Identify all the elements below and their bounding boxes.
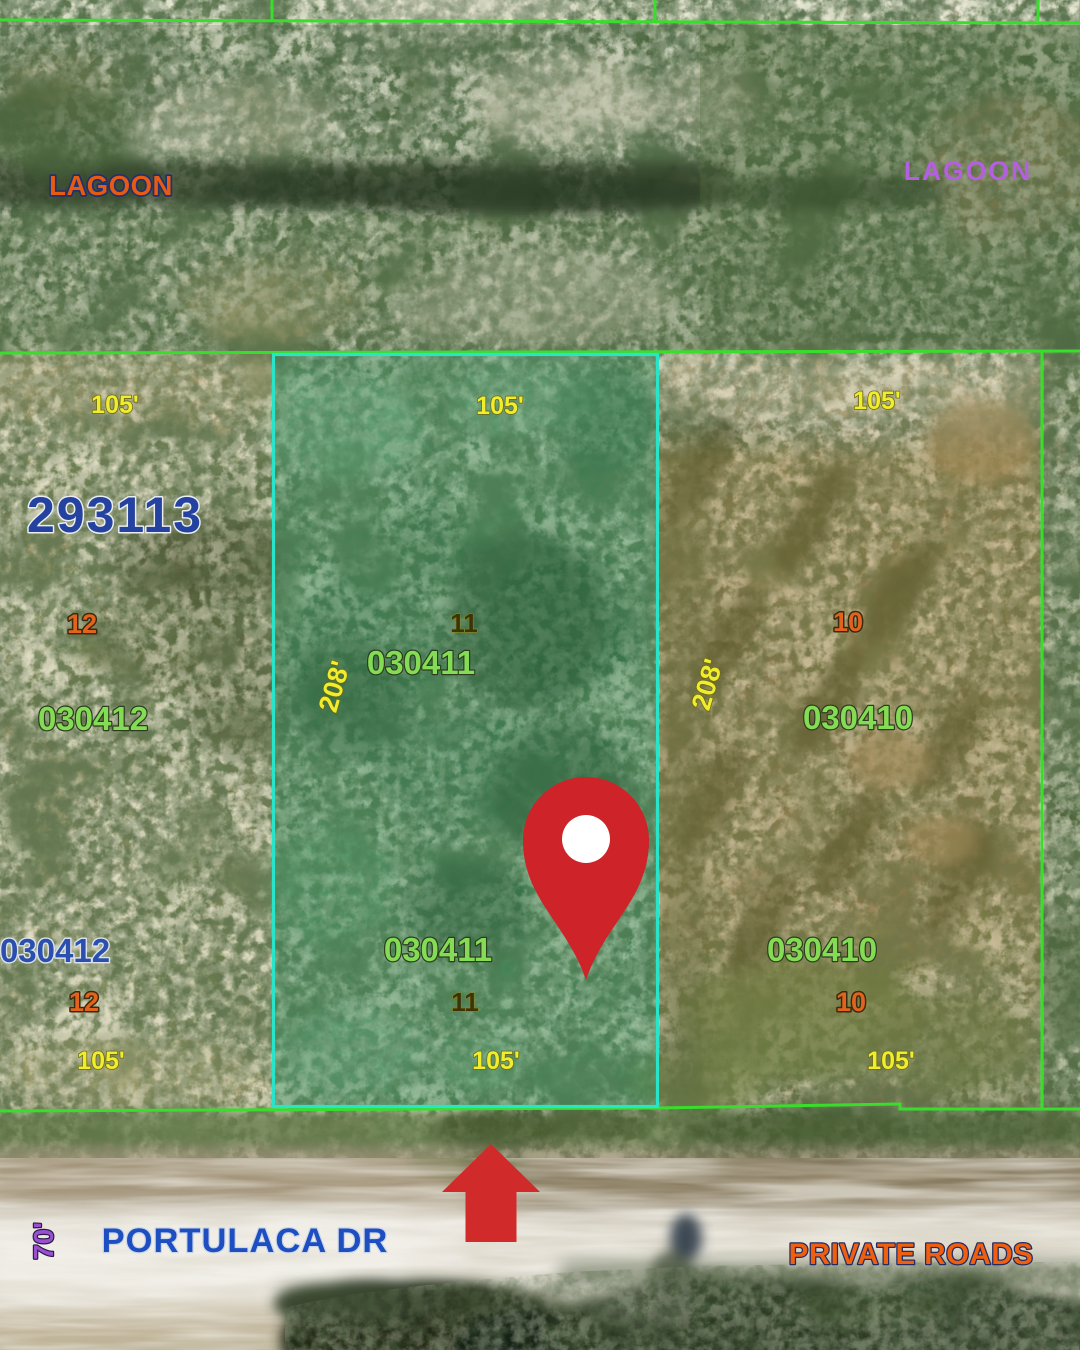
svg-text:030411: 030411 xyxy=(384,931,492,968)
svg-text:105': 105' xyxy=(472,1047,520,1075)
svg-text:105': 105' xyxy=(853,387,901,415)
svg-text:030412: 030412 xyxy=(38,700,148,737)
svg-text:LAGOON: LAGOON xyxy=(49,170,173,201)
svg-text:12: 12 xyxy=(67,609,97,639)
svg-text:105': 105' xyxy=(77,1047,125,1075)
svg-text:105': 105' xyxy=(91,391,139,419)
svg-text:PORTULACA DR: PORTULACA DR xyxy=(102,1222,389,1260)
svg-text:11: 11 xyxy=(451,987,479,1017)
svg-text:12: 12 xyxy=(69,987,99,1017)
svg-text:10: 10 xyxy=(833,607,863,637)
svg-text:LAGOON: LAGOON xyxy=(904,156,1032,186)
svg-text:10: 10 xyxy=(836,987,866,1017)
svg-text:030410: 030410 xyxy=(803,699,913,736)
svg-text:11: 11 xyxy=(450,608,478,638)
svg-text:105': 105' xyxy=(476,392,524,420)
svg-text:293113: 293113 xyxy=(27,487,203,543)
svg-text:030412: 030412 xyxy=(0,932,110,969)
svg-text:030410: 030410 xyxy=(767,931,877,968)
svg-text:70': 70' xyxy=(28,1222,59,1260)
svg-text:PRIVATE ROADS: PRIVATE ROADS xyxy=(789,1238,1034,1271)
svg-text:030411: 030411 xyxy=(367,644,475,681)
svg-text:105': 105' xyxy=(867,1047,915,1075)
